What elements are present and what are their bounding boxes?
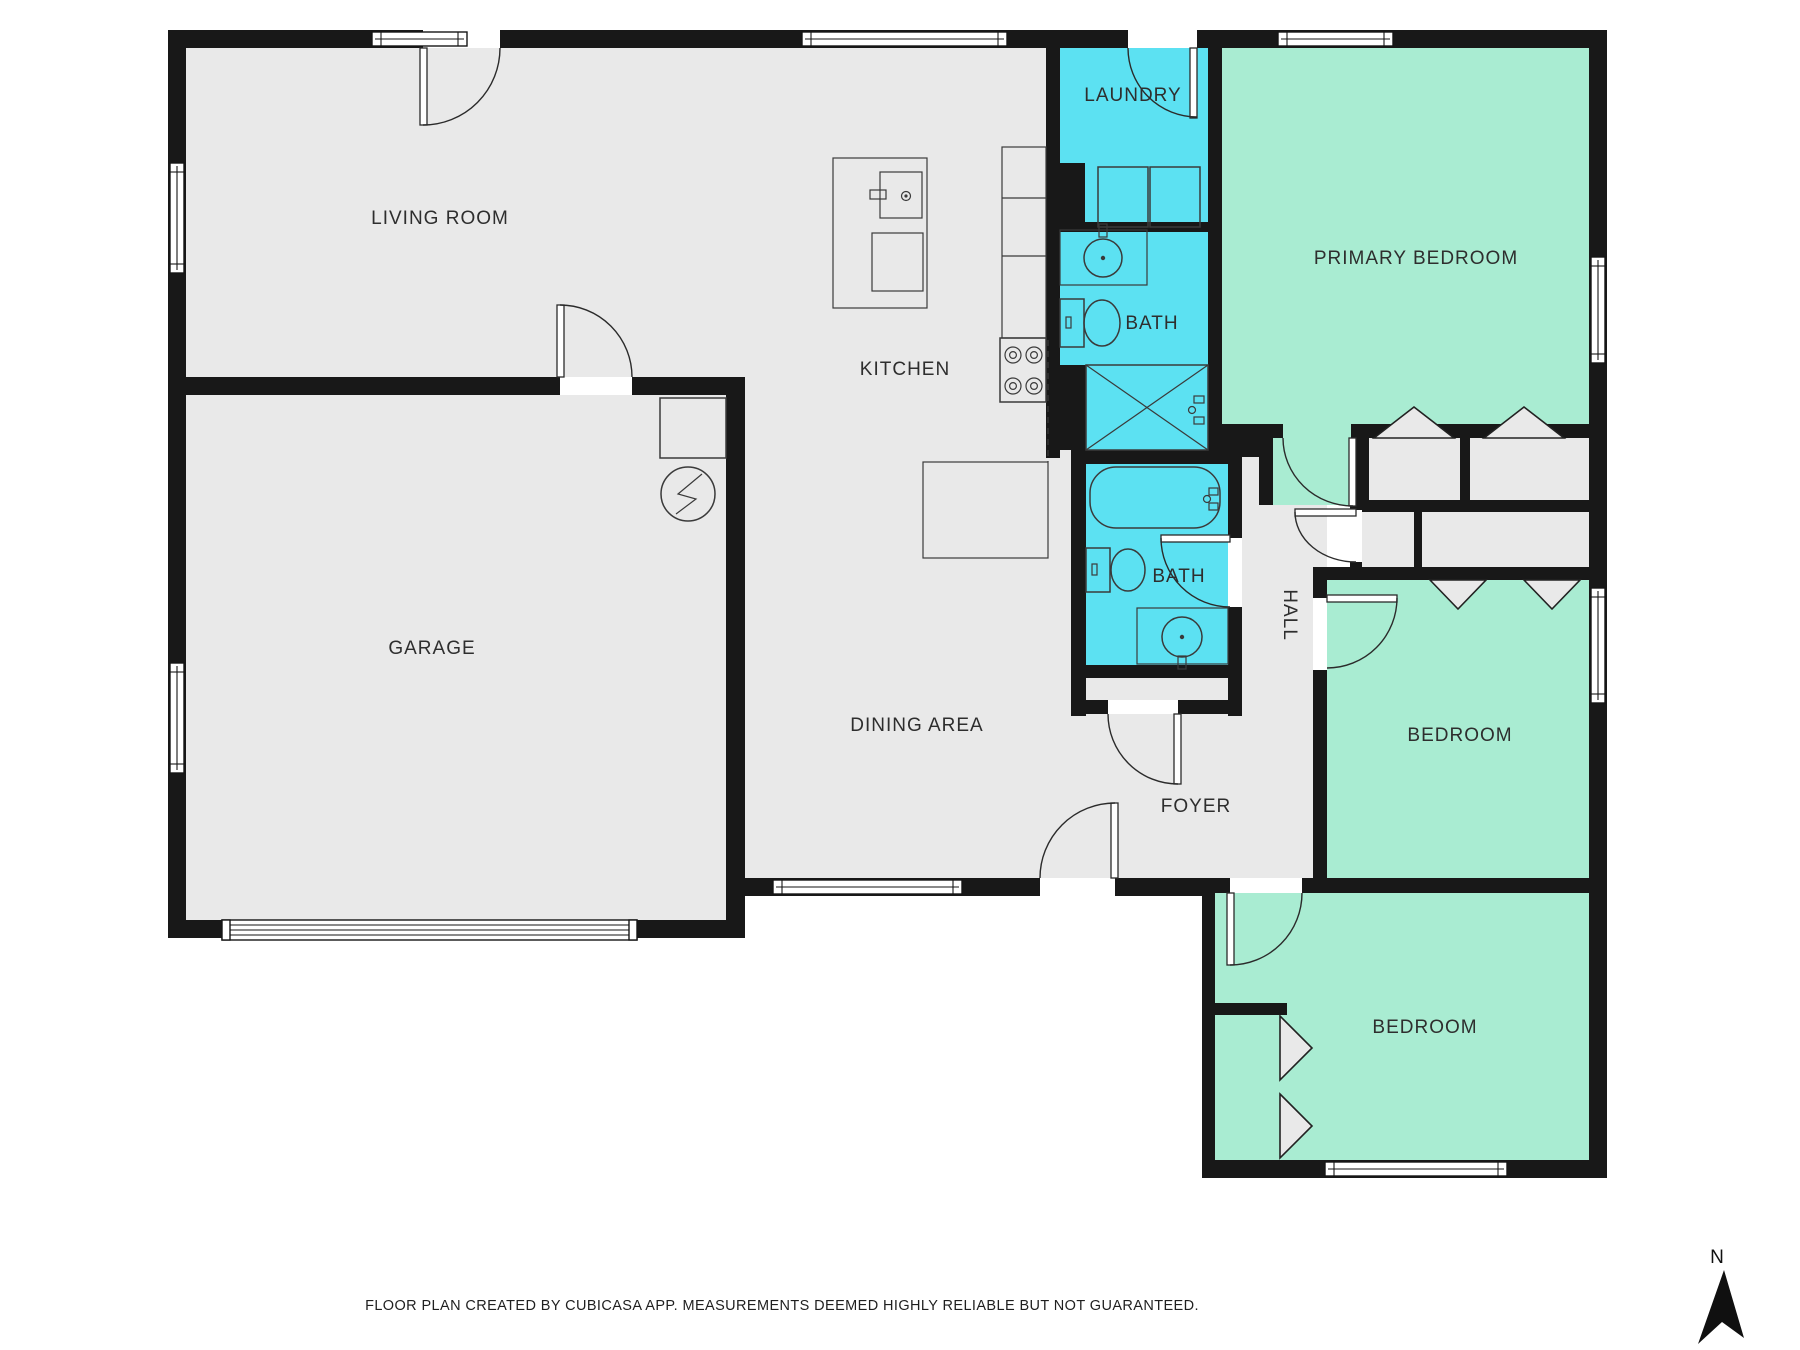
window-primary-top: [1278, 32, 1393, 46]
room-label-bedroom-bottom: BEDROOM: [1372, 1017, 1477, 1038]
room-label-bath-lower: BATH: [1152, 566, 1205, 587]
garage-door: [222, 920, 637, 940]
room-label-laundry: LAUNDRY: [1084, 85, 1181, 106]
room-label-hall: HALL: [1279, 589, 1300, 641]
north-arrow-icon: [1698, 1270, 1744, 1344]
floor-plan-canvas: LIVING ROOM KITCHEN DINING AREA GARAGE L…: [0, 0, 1800, 1350]
north-label: N: [1710, 1247, 1724, 1268]
floor-plan: LIVING ROOM KITCHEN DINING AREA GARAGE L…: [0, 0, 1800, 1350]
room-label-garage: GARAGE: [388, 638, 475, 659]
room-label-primary-bedroom: PRIMARY BEDROOM: [1314, 248, 1518, 269]
window-living-top: [372, 32, 467, 46]
compass: N: [1698, 1247, 1744, 1344]
window-living-left: [170, 163, 184, 273]
room-label-dining-area: DINING AREA: [850, 715, 983, 736]
footer-disclaimer: FLOOR PLAN CREATED BY CUBICASA APP. MEAS…: [365, 1298, 1199, 1314]
window-dining-bottom: [773, 880, 962, 894]
room-label-foyer: FOYER: [1161, 796, 1231, 817]
window-bedroom-bottom: [1325, 1162, 1507, 1176]
room-label-bath-upper: BATH: [1125, 313, 1178, 334]
room-label-bedroom-middle: BEDROOM: [1407, 725, 1512, 746]
window-bedroom2-right: [1591, 588, 1605, 703]
window-kitchen-top: [802, 32, 1007, 46]
room-label-kitchen: KITCHEN: [860, 359, 950, 380]
room-label-living-room: LIVING ROOM: [371, 208, 509, 229]
window-garage-left: [170, 663, 184, 773]
window-primary-right: [1591, 257, 1605, 363]
